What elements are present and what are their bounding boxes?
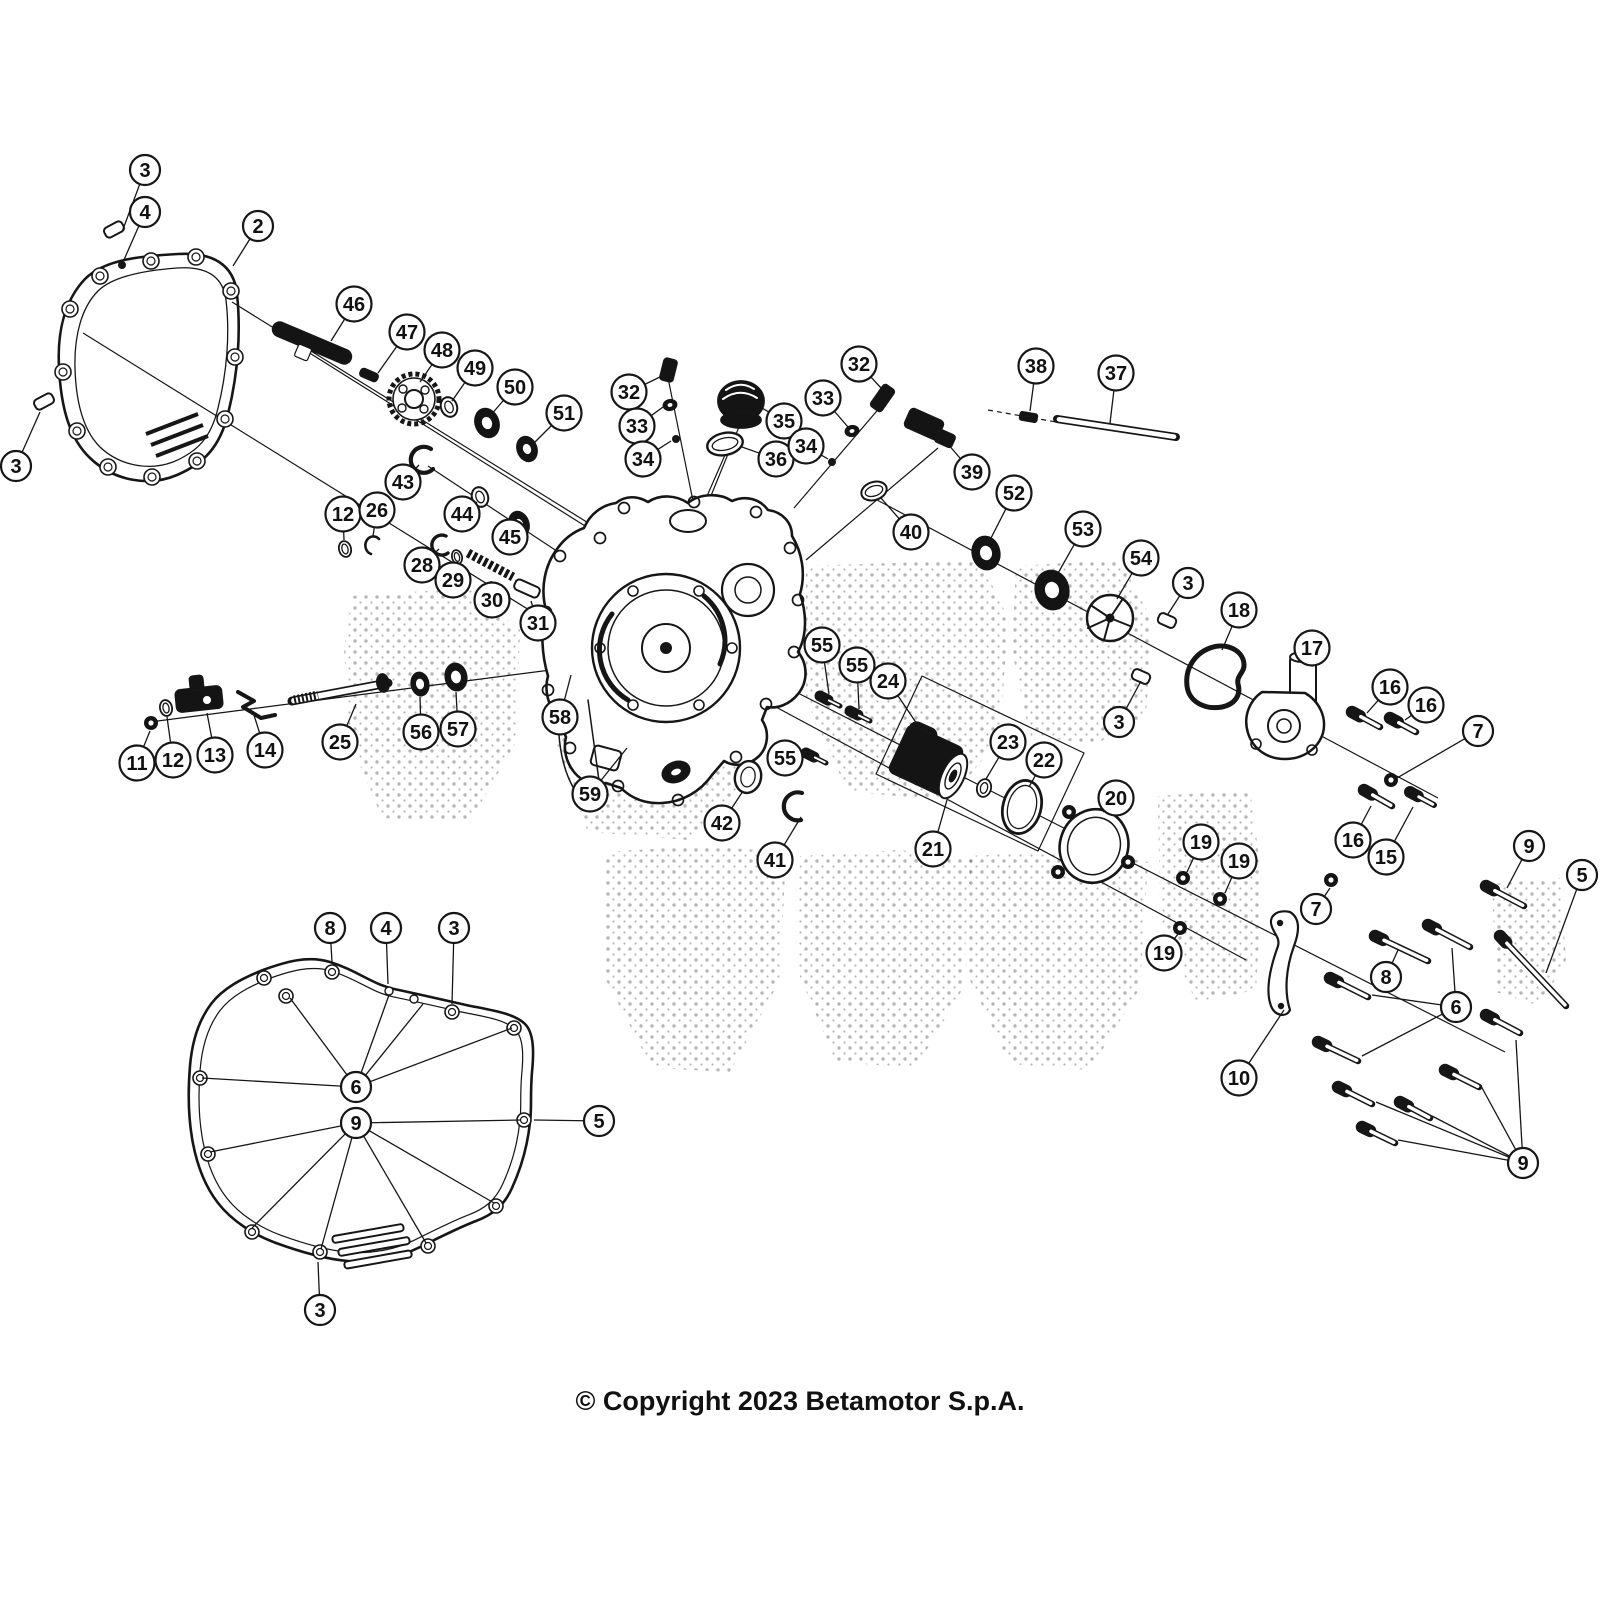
callout-21[interactable]: 21 bbox=[916, 832, 951, 867]
callout-number: 6 bbox=[350, 1077, 361, 1099]
bolt-hole bbox=[257, 971, 271, 985]
part-20-ear-inner bbox=[1055, 869, 1060, 874]
callout-number: 5 bbox=[1576, 865, 1587, 887]
callout-number: 55 bbox=[811, 635, 833, 657]
part-37-rod-face bbox=[1059, 419, 1174, 436]
callout-number: 39 bbox=[961, 462, 983, 484]
leader-line bbox=[1481, 1086, 1516, 1150]
bolt-hole bbox=[69, 423, 85, 439]
callout-number: 16 bbox=[1379, 677, 1401, 699]
callout-number: 2 bbox=[252, 216, 263, 238]
callout-56[interactable]: 56 bbox=[404, 715, 439, 750]
leader-line bbox=[762, 408, 769, 412]
leader-line bbox=[1452, 948, 1455, 992]
callout-16[interactable]: 16 bbox=[1336, 823, 1371, 858]
leader-line bbox=[1324, 888, 1330, 897]
part-10-lever bbox=[1268, 911, 1298, 1015]
callout-number: 24 bbox=[877, 671, 900, 693]
bolt-hole bbox=[189, 453, 205, 469]
callout-10[interactable]: 10 bbox=[1222, 1061, 1257, 1096]
callout-number: 9 bbox=[1517, 1153, 1528, 1175]
callout-number: 23 bbox=[997, 732, 1019, 754]
callout-number: 36 bbox=[765, 449, 787, 471]
callout-32[interactable]: 32 bbox=[842, 347, 877, 382]
leader-line bbox=[1361, 806, 1371, 825]
bolt-hole bbox=[507, 1021, 521, 1035]
callout-number: 41 bbox=[764, 850, 786, 872]
leader-line bbox=[1405, 715, 1412, 720]
part-circle bbox=[410, 995, 418, 1003]
part-23-seal bbox=[975, 777, 993, 798]
callout-9[interactable]: 9 bbox=[1508, 1148, 1538, 1178]
part-dot bbox=[1278, 1003, 1284, 1009]
callout-39[interactable]: 39 bbox=[955, 455, 990, 490]
part-12-washer-top bbox=[337, 540, 353, 559]
leader-line bbox=[651, 407, 663, 416]
part-2-gasket bbox=[59, 254, 239, 481]
callout-number: 32 bbox=[618, 382, 640, 404]
leader-line bbox=[871, 377, 881, 388]
leader-line bbox=[947, 443, 961, 459]
bolt-hole bbox=[217, 411, 233, 427]
callout-number: 43 bbox=[392, 472, 414, 494]
part-34-ball-left bbox=[672, 435, 680, 443]
callout-number: 38 bbox=[1025, 356, 1047, 378]
callout-12[interactable]: 12 bbox=[156, 743, 191, 778]
bolt-hole bbox=[223, 283, 239, 299]
callout-number: 11 bbox=[126, 753, 147, 775]
callout-number: 58 bbox=[549, 707, 571, 729]
callout-40[interactable]: 40 bbox=[894, 515, 929, 550]
bolt-hole bbox=[92, 268, 108, 284]
callout-37[interactable]: 37 bbox=[1099, 356, 1134, 391]
callout-45[interactable]: 45 bbox=[493, 520, 528, 555]
bolt-hole bbox=[325, 965, 339, 979]
callout-number: 28 bbox=[411, 555, 433, 577]
callout-34[interactable]: 34 bbox=[789, 429, 824, 464]
callout-number: 47 bbox=[396, 322, 418, 344]
part-30-spring bbox=[468, 553, 513, 577]
callout-48[interactable]: 48 bbox=[425, 333, 460, 368]
bolt-hole bbox=[100, 459, 116, 475]
leader-line bbox=[1376, 1102, 1509, 1157]
leader-line bbox=[1110, 390, 1114, 423]
callout-number: 12 bbox=[162, 750, 184, 772]
part-19-nut-inner bbox=[1177, 925, 1182, 930]
part-3-bush-a bbox=[1157, 612, 1178, 629]
callout-8[interactable]: 8 bbox=[1371, 962, 1401, 992]
part-34-ball-right bbox=[828, 458, 836, 466]
callout-11[interactable]: 11 bbox=[120, 746, 155, 781]
leader-line bbox=[452, 382, 465, 401]
callout-6[interactable]: 6 bbox=[1441, 992, 1471, 1022]
leader-line bbox=[658, 441, 671, 450]
leader-line bbox=[645, 376, 662, 384]
callout-number: 17 bbox=[1301, 638, 1323, 660]
leader-line bbox=[1168, 596, 1180, 614]
leader-line bbox=[490, 400, 504, 416]
leader-line bbox=[534, 1120, 584, 1121]
callout-5[interactable]: 5 bbox=[1567, 860, 1597, 890]
callout-55[interactable]: 55 bbox=[805, 628, 840, 663]
callout-number: 7 bbox=[1310, 899, 1321, 921]
callout-number: 49 bbox=[464, 358, 486, 380]
callout-32[interactable]: 32 bbox=[612, 375, 647, 410]
part-32-screw-right bbox=[870, 384, 896, 413]
callout-number: 16 bbox=[1415, 695, 1437, 717]
callout-50[interactable]: 50 bbox=[498, 370, 533, 405]
callout-number: 13 bbox=[204, 745, 226, 767]
callout-33[interactable]: 33 bbox=[620, 409, 655, 444]
callout-2[interactable]: 2 bbox=[243, 211, 273, 241]
callout-number: 56 bbox=[410, 722, 432, 744]
callout-3[interactable]: 3 bbox=[1104, 707, 1134, 737]
leader-line bbox=[533, 425, 552, 444]
callout-51[interactable]: 51 bbox=[547, 396, 582, 431]
callout-number: 12 bbox=[332, 504, 354, 526]
part-14-clip bbox=[238, 692, 275, 718]
callout-18[interactable]: 18 bbox=[1222, 593, 1257, 628]
part-11-nut-inner bbox=[148, 720, 153, 725]
callout-15[interactable]: 15 bbox=[1369, 840, 1404, 875]
callout-25[interactable]: 25 bbox=[323, 725, 358, 760]
callout-13[interactable]: 13 bbox=[198, 738, 233, 773]
leader-line bbox=[1249, 1010, 1284, 1063]
part-47-pin bbox=[359, 368, 379, 382]
callout-12[interactable]: 12 bbox=[326, 497, 361, 532]
callout-number: 4 bbox=[380, 918, 392, 940]
callout-46[interactable]: 46 bbox=[337, 287, 372, 322]
bolt-hole bbox=[143, 253, 159, 269]
callout-number: 18 bbox=[1228, 600, 1250, 622]
callout-number: 22 bbox=[1033, 750, 1055, 772]
copyright-text: © Copyright 2023 Betamotor S.p.A. bbox=[0, 1386, 1600, 1417]
callout-number: 45 bbox=[499, 527, 521, 549]
callout-number: 3 bbox=[1113, 712, 1124, 734]
part-6-bolt-shaft-face bbox=[1339, 982, 1367, 996]
part-39-fitting-tip bbox=[934, 429, 956, 448]
part-3-dowel-left bbox=[33, 392, 56, 411]
callout-31[interactable]: 31 bbox=[521, 606, 556, 641]
leader-line bbox=[420, 697, 421, 715]
part-31-pin bbox=[513, 578, 541, 599]
callout-52[interactable]: 52 bbox=[997, 476, 1032, 511]
callout-number: 16 bbox=[1342, 830, 1364, 852]
callout-number: 52 bbox=[1003, 483, 1025, 505]
leader-line bbox=[452, 943, 454, 1004]
callout-number: 3 bbox=[139, 160, 150, 182]
callout-3[interactable]: 3 bbox=[130, 155, 160, 185]
leader-line bbox=[834, 411, 848, 427]
bolt-hole bbox=[445, 1005, 459, 1019]
callout-33[interactable]: 33 bbox=[806, 381, 841, 416]
callout-number: 3 bbox=[1182, 573, 1193, 595]
callout-19[interactable]: 19 bbox=[1222, 844, 1257, 879]
callout-26[interactable]: 26 bbox=[360, 493, 395, 528]
callout-number: 14 bbox=[254, 740, 277, 762]
part-17-pump-boss bbox=[1268, 710, 1300, 742]
callout-49[interactable]: 49 bbox=[458, 351, 493, 386]
callout-number: 48 bbox=[431, 340, 453, 362]
callout-22[interactable]: 22 bbox=[1027, 743, 1062, 778]
callout-54[interactable]: 54 bbox=[1124, 541, 1159, 576]
callout-43[interactable]: 43 bbox=[386, 465, 421, 500]
leader-line bbox=[880, 497, 899, 519]
part-19-nut-inner bbox=[1180, 875, 1185, 880]
callout-5[interactable]: 5 bbox=[584, 1106, 614, 1136]
leader-line bbox=[373, 527, 374, 536]
callout-number: 4 bbox=[139, 202, 151, 224]
leader-line bbox=[1030, 383, 1034, 411]
callout-number: 32 bbox=[848, 354, 870, 376]
case-side-bore bbox=[722, 564, 774, 616]
leader-line bbox=[742, 447, 759, 453]
callout-7[interactable]: 7 bbox=[1301, 894, 1331, 924]
part-41-circlip bbox=[784, 792, 802, 820]
part-9-bolt-shaft-face bbox=[1409, 1107, 1429, 1118]
part-6-bolt-shaft-face bbox=[1327, 1046, 1357, 1060]
callout-55[interactable]: 55 bbox=[840, 648, 875, 683]
part-18-gasket bbox=[1187, 646, 1244, 708]
callout-number: 21 bbox=[922, 839, 944, 861]
callout-number: 34 bbox=[795, 436, 818, 458]
callout-3[interactable]: 3 bbox=[1, 451, 31, 481]
callout-57[interactable]: 57 bbox=[441, 712, 476, 747]
callout-number: 31 bbox=[527, 613, 549, 635]
callout-38[interactable]: 38 bbox=[1019, 349, 1054, 384]
callout-number: 30 bbox=[481, 590, 503, 612]
callout-number: 55 bbox=[846, 655, 868, 677]
callout-number: 3 bbox=[448, 918, 459, 940]
callout-number: 55 bbox=[774, 748, 796, 770]
part-32-screw-left bbox=[660, 358, 678, 382]
callout-number: 46 bbox=[343, 294, 365, 316]
callout-number: 9 bbox=[350, 1113, 361, 1135]
callout-number: 53 bbox=[1072, 519, 1094, 541]
callout-number: 10 bbox=[1228, 1068, 1250, 1090]
part-48-gear bbox=[393, 378, 435, 420]
callout-number: 33 bbox=[626, 416, 648, 438]
leader-line bbox=[378, 346, 397, 373]
leader-line bbox=[821, 455, 828, 459]
callout-number: 26 bbox=[366, 500, 388, 522]
callout-47[interactable]: 47 bbox=[390, 315, 425, 350]
callout-17[interactable]: 17 bbox=[1295, 631, 1330, 666]
part-35-oil-cap-flange bbox=[721, 412, 761, 428]
diagram-svg: 3423464748495051434445122628293031323334… bbox=[0, 0, 1600, 1600]
leader-line bbox=[1432, 1116, 1510, 1156]
callout-14[interactable]: 14 bbox=[248, 733, 283, 768]
callout-number: 29 bbox=[442, 570, 464, 592]
callout-24[interactable]: 24 bbox=[871, 664, 906, 699]
callout-41[interactable]: 41 bbox=[758, 843, 793, 878]
callout-59[interactable]: 59 bbox=[573, 777, 608, 812]
part-38-union bbox=[1019, 412, 1037, 423]
callout-7[interactable]: 7 bbox=[1463, 716, 1493, 746]
part-6-bolt-shaft-face bbox=[1437, 930, 1469, 947]
part-9-bolt-shaft-face bbox=[1347, 1091, 1371, 1103]
bolt-hole bbox=[201, 1147, 215, 1161]
callout-16[interactable]: 16 bbox=[1409, 688, 1444, 723]
callout-number: 35 bbox=[773, 411, 795, 433]
part-40-oring bbox=[859, 478, 889, 503]
part-7-nut-inner bbox=[1388, 777, 1393, 782]
part-8-bolt-shaft-face bbox=[1384, 940, 1427, 960]
leader-line bbox=[1397, 739, 1465, 778]
callout-number: 51 bbox=[553, 403, 575, 425]
part-7-nut-b-inner bbox=[1328, 877, 1333, 882]
callout-number: 44 bbox=[451, 504, 474, 526]
watermark-halftone bbox=[604, 846, 786, 1072]
callout-23[interactable]: 23 bbox=[991, 725, 1026, 760]
callout-number: 19 bbox=[1153, 943, 1175, 965]
axis-line bbox=[666, 368, 694, 506]
callout-4[interactable]: 4 bbox=[371, 913, 401, 943]
callout-6[interactable]: 6 bbox=[341, 1072, 371, 1102]
callout-30[interactable]: 30 bbox=[475, 583, 510, 618]
callout-19[interactable]: 19 bbox=[1184, 825, 1219, 860]
part-9-bolt-shaft-face bbox=[1454, 1074, 1478, 1086]
part-20-ear-inner bbox=[1066, 809, 1071, 814]
bolt-hole bbox=[188, 249, 204, 265]
part-dot bbox=[1277, 920, 1283, 926]
callout-number: 9 bbox=[1523, 836, 1534, 858]
callout-number: 37 bbox=[1105, 363, 1127, 385]
callout-number: 40 bbox=[900, 522, 922, 544]
part-13-valve-hole bbox=[203, 696, 212, 705]
leader-line bbox=[938, 800, 947, 832]
part-circle bbox=[385, 987, 393, 995]
callout-29[interactable]: 29 bbox=[436, 563, 471, 598]
leader-line bbox=[207, 713, 212, 738]
leader-line bbox=[1394, 807, 1413, 842]
case-top-port bbox=[670, 510, 706, 532]
callout-number: 25 bbox=[329, 732, 351, 754]
bolt-hole bbox=[227, 349, 243, 365]
part-9-bolt-shaft-face bbox=[1495, 1020, 1519, 1033]
callout-number: 20 bbox=[1105, 788, 1127, 810]
bolt-hole bbox=[313, 1245, 327, 1259]
callout-34[interactable]: 34 bbox=[626, 442, 661, 477]
leader-line bbox=[1367, 700, 1378, 713]
callout-55[interactable]: 55 bbox=[768, 741, 803, 776]
part-20-ear-inner bbox=[1125, 859, 1130, 864]
part-46-shaft bbox=[271, 320, 354, 366]
callout-3[interactable]: 3 bbox=[439, 913, 469, 943]
leader-line bbox=[1372, 995, 1441, 1005]
part-3-dowel-top bbox=[103, 220, 126, 239]
callout-number: 8 bbox=[1380, 967, 1391, 989]
watermark-halftone bbox=[344, 588, 520, 822]
callout-number: 8 bbox=[324, 918, 335, 940]
callout-number: 5 bbox=[593, 1111, 604, 1133]
leader-line bbox=[1362, 1014, 1443, 1056]
bolt-hole bbox=[55, 364, 71, 380]
part-dot bbox=[660, 642, 672, 654]
callout-number: 33 bbox=[812, 388, 834, 410]
callout-53[interactable]: 53 bbox=[1066, 512, 1101, 547]
part-36-oring bbox=[705, 429, 745, 458]
bolt-hole bbox=[421, 1239, 435, 1253]
callout-3[interactable]: 3 bbox=[1173, 568, 1203, 598]
callout-number: 54 bbox=[1130, 548, 1153, 570]
part-13-valve-tab bbox=[189, 675, 203, 690]
callout-3[interactable]: 3 bbox=[305, 1295, 335, 1325]
leader-line bbox=[331, 943, 332, 962]
leader-line bbox=[387, 943, 388, 984]
leader-line bbox=[167, 717, 171, 743]
callout-number: 6 bbox=[1450, 997, 1461, 1019]
part-12-washer-bottom bbox=[158, 699, 173, 717]
diagram-page: 3423464748495051434445122628293031323334… bbox=[0, 0, 1600, 1600]
bolt-hole bbox=[62, 301, 78, 317]
bolt-hole bbox=[144, 469, 160, 485]
callout-58[interactable]: 58 bbox=[543, 700, 578, 735]
callout-number: 19 bbox=[1228, 851, 1250, 873]
callout-4[interactable]: 4 bbox=[130, 197, 160, 227]
bolt-hole bbox=[279, 989, 293, 1003]
leader-line bbox=[990, 509, 1006, 540]
watermark-halftone bbox=[1158, 790, 1262, 1002]
leader-line bbox=[1392, 950, 1398, 963]
callout-number: 7 bbox=[1472, 721, 1483, 743]
callout-8[interactable]: 8 bbox=[315, 913, 345, 943]
callout-number: 15 bbox=[1375, 847, 1397, 869]
watermark-halftone bbox=[966, 850, 1148, 1070]
part-26-clip bbox=[365, 536, 379, 554]
callout-19[interactable]: 19 bbox=[1147, 936, 1182, 971]
leader-line bbox=[144, 731, 150, 747]
callout-9[interactable]: 9 bbox=[1514, 831, 1544, 861]
callout-number: 3 bbox=[10, 456, 21, 478]
watermark-halftone bbox=[798, 850, 972, 1068]
part-9-bolt-shaft-face bbox=[1371, 1131, 1394, 1142]
part-54-hub bbox=[1106, 614, 1115, 623]
callout-number: 34 bbox=[632, 449, 655, 471]
callout-number: 42 bbox=[711, 813, 733, 835]
leader-line bbox=[1516, 1040, 1522, 1148]
callout-number: 57 bbox=[447, 719, 469, 741]
callout-number: 50 bbox=[504, 377, 526, 399]
callout-28[interactable]: 28 bbox=[405, 548, 440, 583]
leader-line bbox=[318, 1262, 319, 1295]
engine-case bbox=[542, 495, 805, 803]
part-19-nut-inner bbox=[1217, 896, 1222, 901]
callout-20[interactable]: 20 bbox=[1099, 781, 1134, 816]
leader-line bbox=[22, 412, 40, 452]
leader-line bbox=[233, 239, 250, 266]
callout-9[interactable]: 9 bbox=[341, 1108, 371, 1138]
callout-number: 3 bbox=[314, 1300, 325, 1322]
callout-42[interactable]: 42 bbox=[705, 806, 740, 841]
leader-line bbox=[986, 757, 999, 779]
callout-number: 59 bbox=[579, 784, 601, 806]
callout-44[interactable]: 44 bbox=[445, 497, 480, 532]
callout-number: 19 bbox=[1190, 832, 1212, 854]
leader-line bbox=[331, 319, 345, 341]
callout-16[interactable]: 16 bbox=[1373, 670, 1408, 705]
